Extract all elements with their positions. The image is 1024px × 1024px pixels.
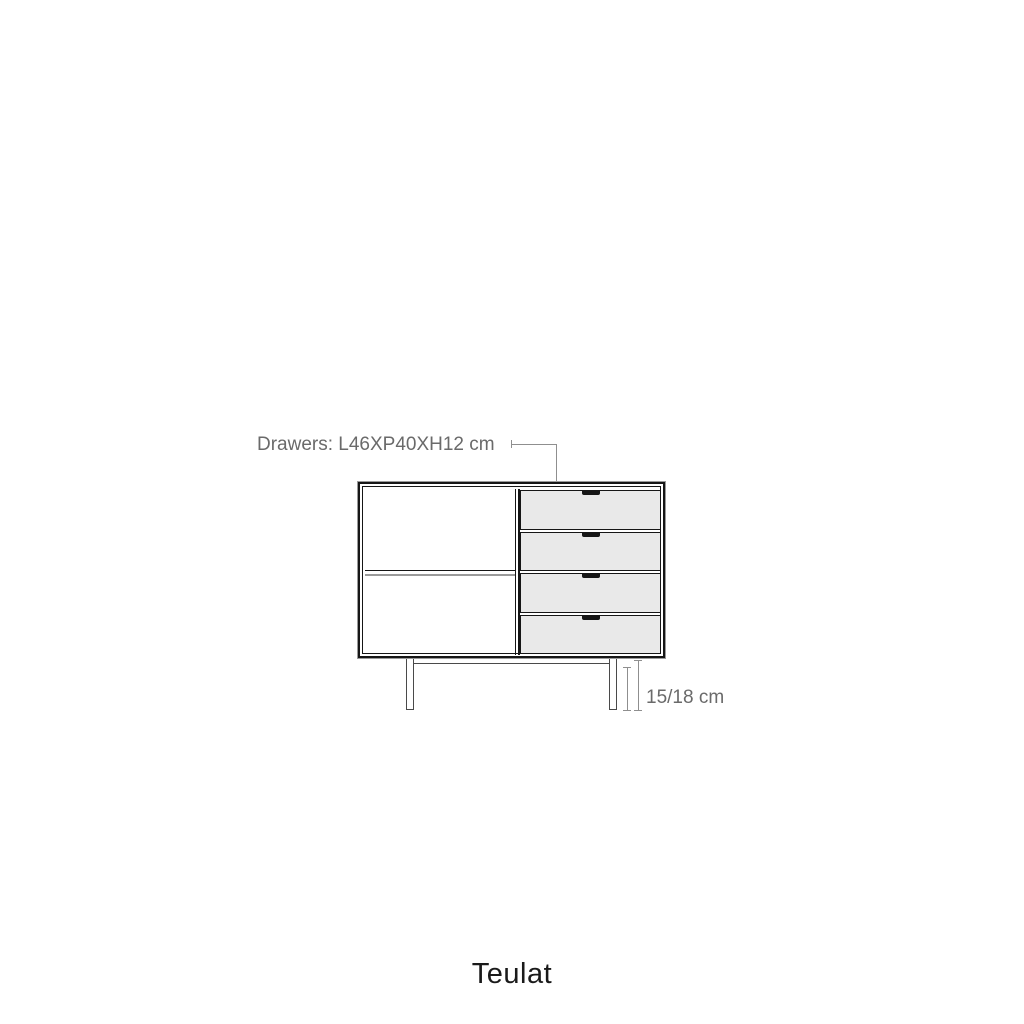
drawer-handle-notch (582, 491, 600, 495)
brand-logo: Teulat (0, 958, 1024, 991)
legs-dimension-line-short (623, 668, 631, 711)
support-rail (410, 657, 615, 664)
section-divider-inner-line (515, 489, 516, 655)
legs-dimension-label: 15/18 cm (646, 687, 724, 709)
drawers-dimension-label: Drawers: L46XP40XH12 cm (257, 434, 495, 456)
shelf-divider-line (365, 570, 515, 571)
diagram-canvas: Drawers: L46XP40XH12 cm 51 cm 29 cm 15/1… (0, 0, 1024, 1024)
drawer-front-4 (520, 615, 661, 655)
drawer-stack (520, 490, 661, 654)
cabinet-body (358, 482, 665, 658)
drawer-front-2 (520, 532, 661, 572)
drawer-front-3 (520, 573, 661, 613)
left-leg (406, 657, 414, 710)
drawer-handle-notch (582, 574, 600, 578)
drawer-handle-notch (582, 533, 600, 537)
right-leg (609, 657, 617, 710)
legs-dimension-line-long (634, 661, 642, 711)
shelf-divider-shadow (365, 574, 515, 576)
drawer-handle-notch (582, 616, 600, 620)
drawer-front-1 (520, 490, 661, 530)
